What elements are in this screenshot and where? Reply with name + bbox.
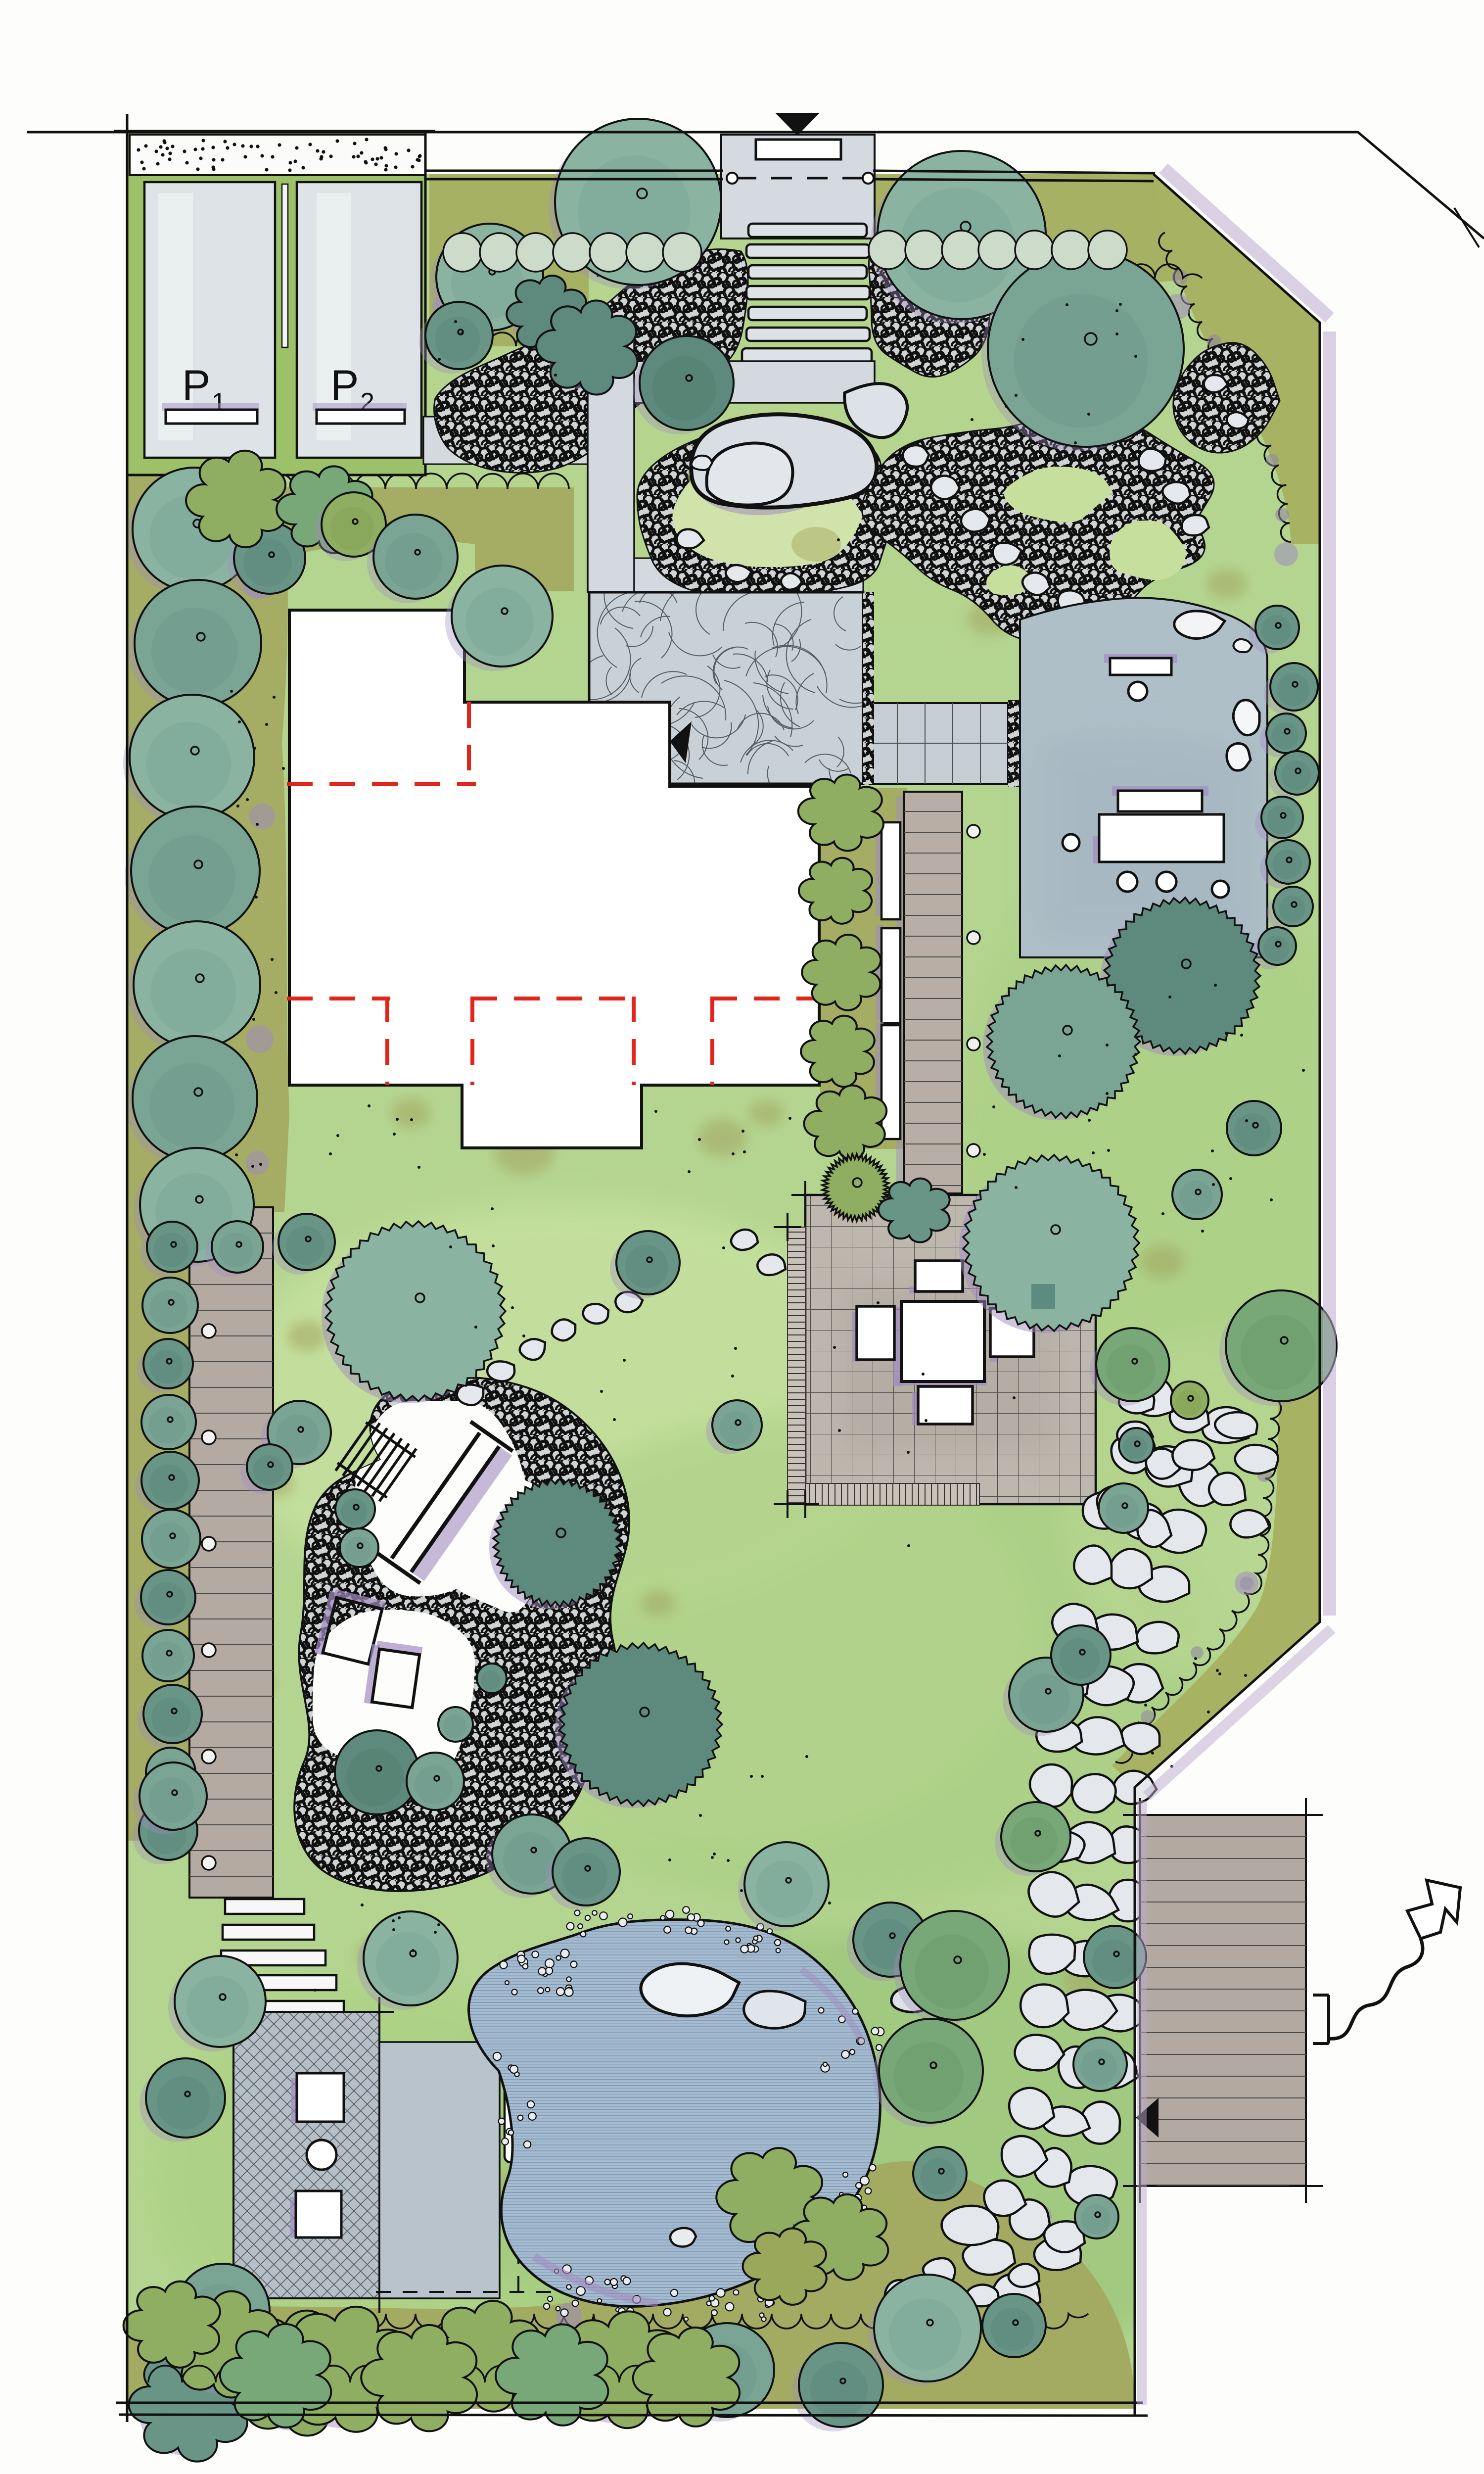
svg-text:P: P [330,362,359,409]
svg-text:P: P [182,362,210,409]
